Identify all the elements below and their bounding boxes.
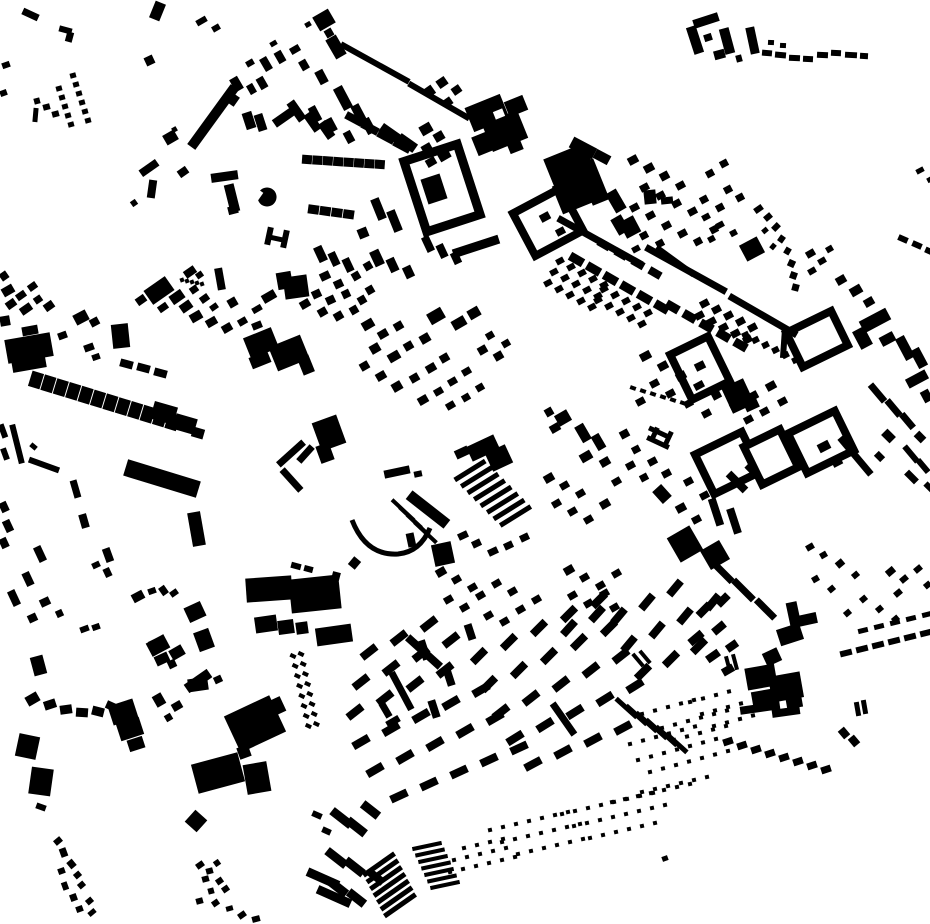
map-canvas (0, 0, 930, 924)
figure-ground-map-svg (0, 0, 930, 924)
